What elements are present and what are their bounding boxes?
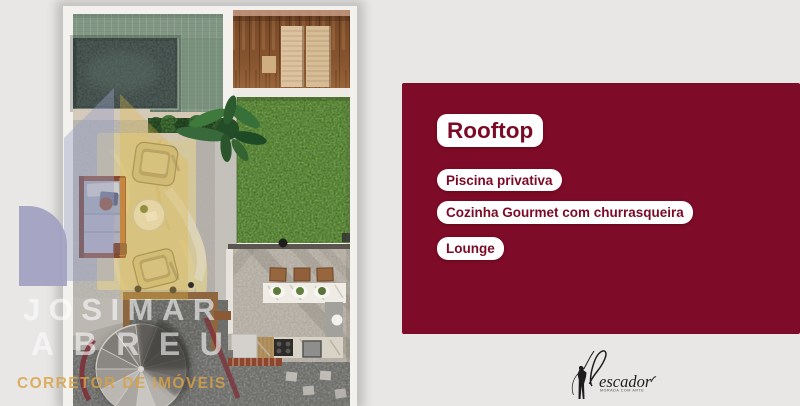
- svg-text:MORADA COM ARTE: MORADA COM ARTE: [600, 389, 644, 393]
- svg-text:ABREU: ABREU: [31, 326, 242, 362]
- svg-text:JOSIMAR: JOSIMAR: [23, 292, 224, 327]
- svg-text:CORRETOR DE IMÓVEIS: CORRETOR DE IMÓVEIS: [17, 374, 227, 392]
